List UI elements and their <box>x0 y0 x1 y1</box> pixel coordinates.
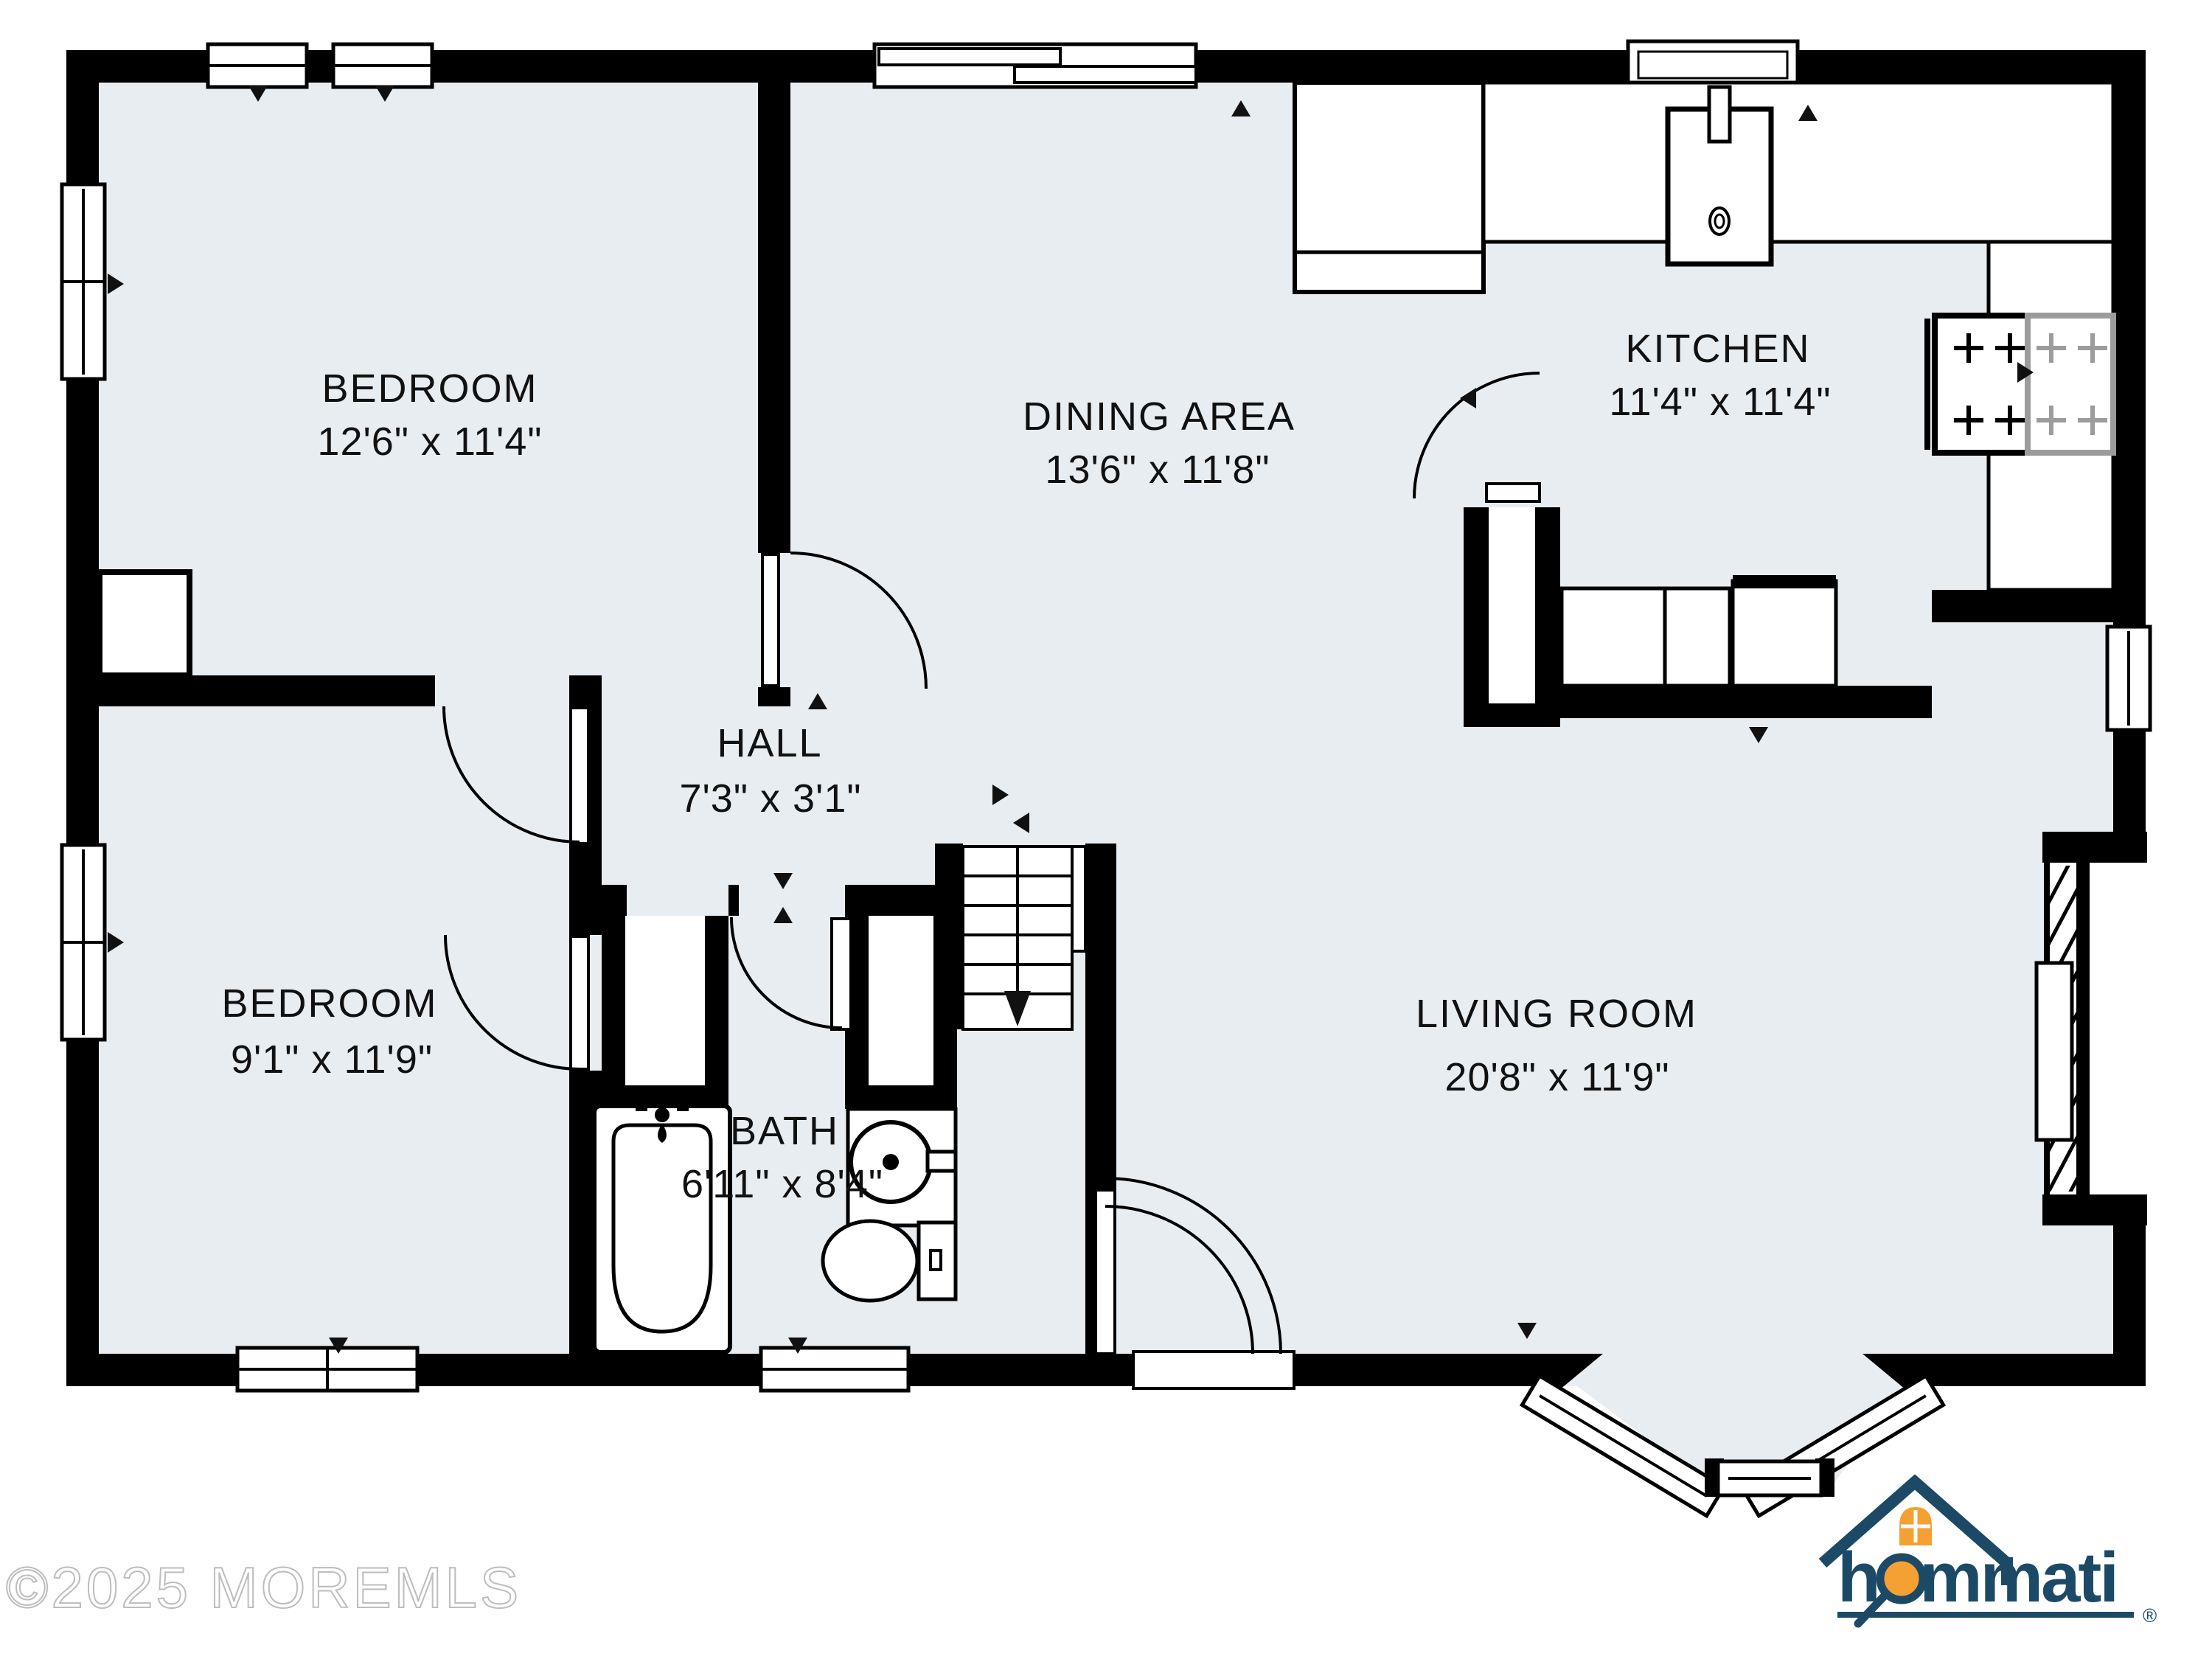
room-dims-bath: 6'11" x 8'4" <box>681 1162 883 1206</box>
logo-registered-mark: ® <box>2143 1604 2157 1627</box>
floor-plan-canvas: BEDROOM 12'6" x 11'4" DINING AREA 13'6" … <box>0 0 2212 1659</box>
kitchen-sink-icon <box>1668 87 1771 264</box>
sliding-glass-door-icon <box>874 44 1196 87</box>
firebox <box>2037 963 2072 1140</box>
room-label-bedroom-2: BEDROOM <box>221 981 437 1026</box>
window <box>62 845 105 1040</box>
kitchen-counter-top <box>1484 83 2113 242</box>
window <box>2107 627 2150 730</box>
mls-watermark: ©2025 MOREMLS <box>6 1555 521 1620</box>
room-dims-hall: 7'3" x 3'1" <box>679 776 861 821</box>
stove-icon <box>1924 316 2113 453</box>
hall-closet-left <box>625 916 705 1085</box>
bathtub-icon <box>594 1106 730 1352</box>
window <box>333 44 432 87</box>
room-dims-bedroom-1: 12'6" x 11'4" <box>317 420 542 464</box>
stair-railing <box>1072 846 1085 951</box>
room-dims-kitchen: 11'4" x 11'4" <box>1609 380 1831 424</box>
window <box>761 1348 908 1391</box>
logo-underline <box>1837 1612 2134 1618</box>
room-dims-bedroom-2: 9'1" x 11'9" <box>231 1037 433 1082</box>
room-label-kitchen: KITCHEN <box>1625 327 1810 371</box>
room-label-dining-area: DINING AREA <box>1023 394 1295 439</box>
room-dims-living-room: 20'8" x 11'9" <box>1444 1055 1669 1099</box>
room-label-bedroom-1: BEDROOM <box>321 366 538 411</box>
hall-closet-right <box>869 916 933 1085</box>
staircase-icon <box>963 846 1085 1029</box>
kitchen-peninsula <box>1562 575 1836 686</box>
room-label-living-room: LIVING ROOM <box>1416 992 1697 1036</box>
hommati-logo: hommati ® <box>1823 1482 2157 1627</box>
room-dims-dining-area: 13'6" x 11'8" <box>1045 448 1270 492</box>
floor-plan-page: BEDROOM 12'6" x 11'4" DINING AREA 13'6" … <box>0 0 2212 1659</box>
bedroom-1-closet <box>100 572 189 675</box>
refrigerator-icon <box>1295 83 1484 292</box>
window <box>208 44 307 87</box>
fireplace-icon <box>2037 811 2147 1286</box>
toilet-icon <box>823 1221 956 1301</box>
room-label-bath: BATH <box>730 1109 839 1153</box>
window <box>237 1348 417 1391</box>
window <box>62 184 105 379</box>
pantry-closet <box>1489 507 1535 703</box>
room-label-hall: HALL <box>717 721 822 765</box>
